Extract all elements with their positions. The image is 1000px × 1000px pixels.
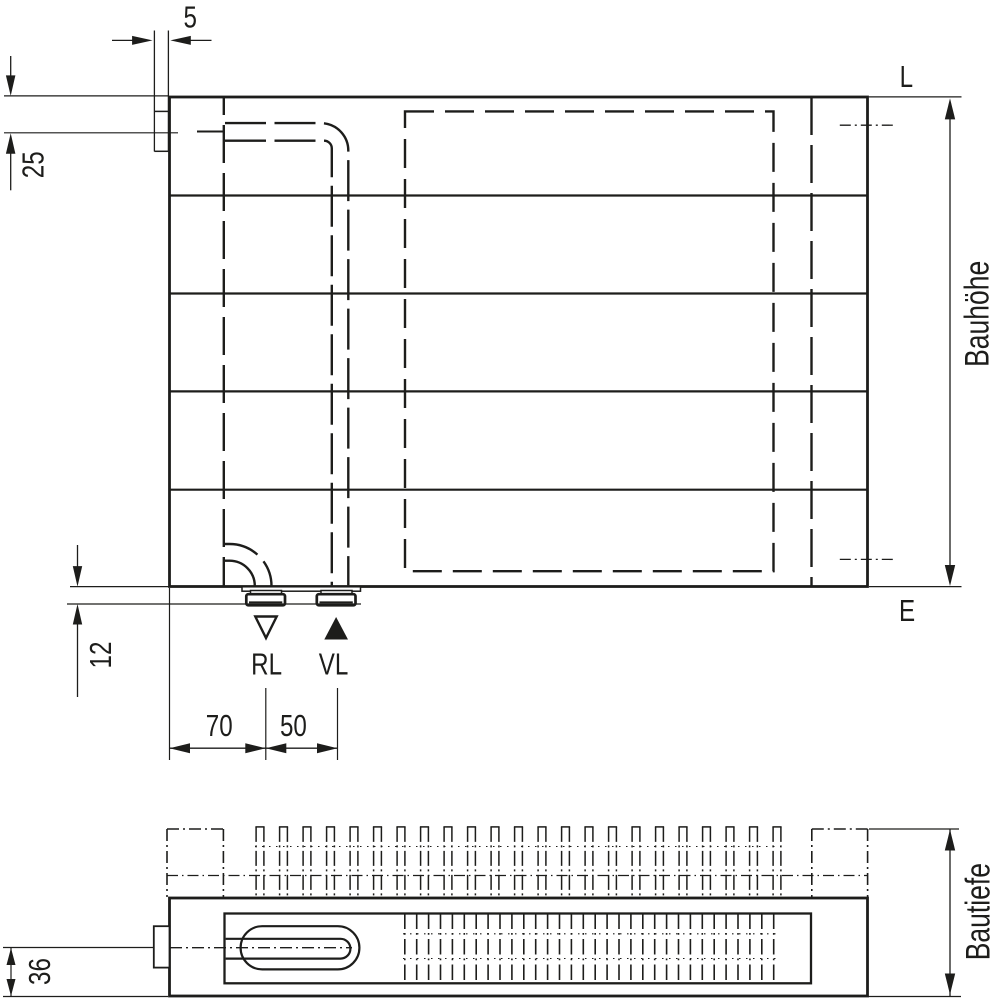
svg-text:5: 5: [183, 0, 196, 34]
svg-text:50: 50: [280, 708, 307, 743]
svg-text:36: 36: [22, 958, 57, 985]
svg-text:12: 12: [83, 642, 118, 669]
svg-text:L: L: [900, 59, 913, 94]
svg-text:RL: RL: [251, 647, 282, 682]
svg-text:Bauhöhe: Bauhöhe: [958, 261, 996, 367]
svg-text:Bautiefe: Bautiefe: [959, 863, 997, 960]
svg-text:25: 25: [16, 151, 51, 178]
svg-text:70: 70: [206, 708, 233, 743]
svg-text:E: E: [899, 593, 915, 628]
svg-text:VL: VL: [319, 647, 349, 682]
